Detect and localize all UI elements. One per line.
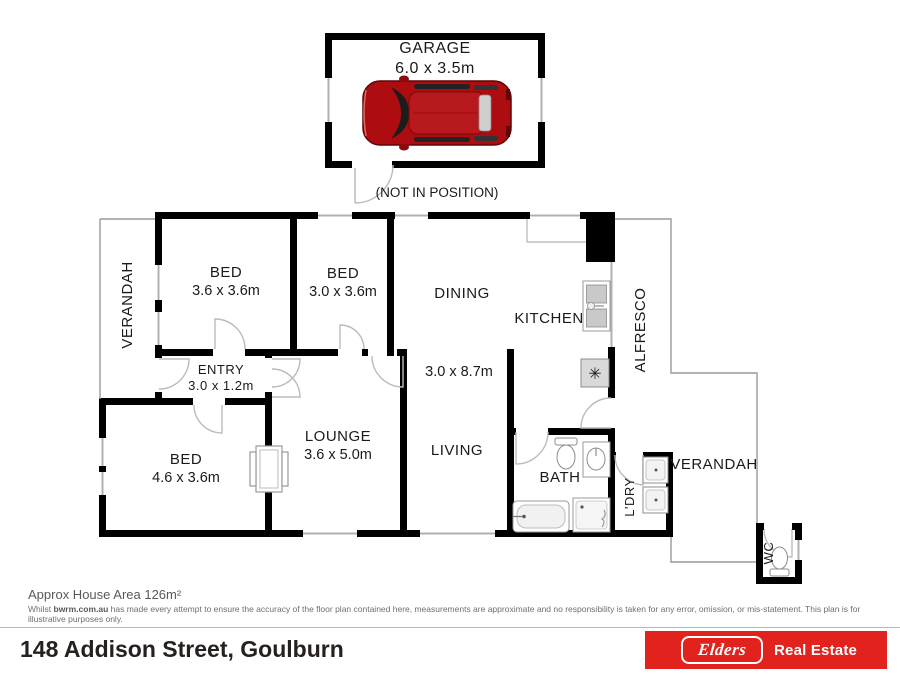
- kitchen-sink: [583, 281, 610, 331]
- room-label-living: LIVING: [431, 442, 483, 459]
- room-label-lounge: LOUNGE: [305, 428, 371, 445]
- verandah-right-bottom-outline: [671, 537, 756, 562]
- room-label-dining: DINING: [434, 285, 490, 302]
- shower: [573, 498, 610, 532]
- bed3-door: [194, 405, 222, 433]
- room-dims-entry: 3.0 x 1.2m: [188, 378, 254, 393]
- entry-left-door: [159, 359, 189, 389]
- garage-dims: 6.0 x 3.5m: [395, 60, 475, 77]
- room-label-bed1: BED: [210, 264, 242, 281]
- bath-toilet: [555, 438, 577, 469]
- room-dims-bed3: 4.6 x 3.6m: [152, 470, 220, 486]
- bathtub: [513, 501, 569, 532]
- floorplan-page: GARAGE 6.0 x 3.5m (NOT IN POSITION): [0, 0, 900, 675]
- garage-note: (NOT IN POSITION): [376, 185, 499, 200]
- room-label-kitchen: KITCHEN: [514, 310, 583, 327]
- room-dims-living-dining: 3.0 x 8.7m: [425, 364, 493, 380]
- room-label-entry: ENTRY: [198, 362, 244, 377]
- bath-door: [516, 432, 548, 464]
- svg-text:✳: ✳: [588, 366, 601, 383]
- disclaimer-brand: bwrm.com.au: [54, 604, 109, 614]
- room-label-bed2: BED: [327, 265, 359, 282]
- elders-logo-suffix: Real Estate: [774, 642, 857, 659]
- elders-logo-bar: Elders Real Estate: [645, 631, 887, 669]
- laundry-tubs: [643, 457, 668, 513]
- area-note: Approx House Area 126m² Whilst bwrm.com.…: [28, 587, 900, 624]
- property-address: 148 Addison Street, Goulburn: [20, 636, 344, 663]
- stove: ✳: [581, 359, 609, 387]
- wc-window: [798, 540, 800, 560]
- fireplace: [250, 446, 288, 492]
- room-dims-lounge: 3.6 x 5.0m: [304, 447, 372, 463]
- garage-label: GARAGE: [399, 40, 470, 57]
- lounge-door: [372, 356, 403, 387]
- disclaimer-prefix: Whilst: [28, 604, 54, 614]
- disclaimer-rest: has made every attempt to ensure the acc…: [28, 604, 860, 624]
- room-label-bath: BATH: [540, 469, 581, 486]
- bed2-door: [340, 325, 364, 349]
- bed1-door: [215, 319, 245, 349]
- room-dims-bed2: 3.0 x 3.6m: [309, 284, 377, 300]
- room-label-wc: WC: [761, 542, 776, 565]
- footer-divider: [0, 627, 900, 628]
- room-label-alfresco: ALFRESCO: [632, 288, 649, 373]
- floorplan-canvas: GARAGE 6.0 x 3.5m (NOT IN POSITION): [0, 0, 900, 630]
- disclaimer-text: Whilst bwrm.com.au has made every attemp…: [28, 604, 900, 624]
- kitchen-step-line: [527, 219, 586, 242]
- elders-logo-script: Elders: [697, 640, 747, 660]
- house-area-text: Approx House Area 126m²: [28, 587, 900, 602]
- room-label-verandah-right: VERANDAH: [670, 456, 757, 473]
- window-lines: [102, 215, 613, 535]
- room-label-laundry: L'DRY: [622, 477, 637, 516]
- room-label-bed3: BED: [170, 451, 202, 468]
- room-dims-bed1: 3.6 x 3.6m: [192, 283, 260, 299]
- room-labels: VERANDAH BED 3.6 x 3.6m BED 3.0 x 3.6m D…: [119, 261, 776, 564]
- elders-logo-badge: Elders: [681, 636, 763, 664]
- car-illustration: [363, 76, 511, 151]
- room-label-verandah-left: VERANDAH: [119, 261, 136, 348]
- alfresco-door: [581, 398, 611, 428]
- bath-vanity: [583, 442, 610, 477]
